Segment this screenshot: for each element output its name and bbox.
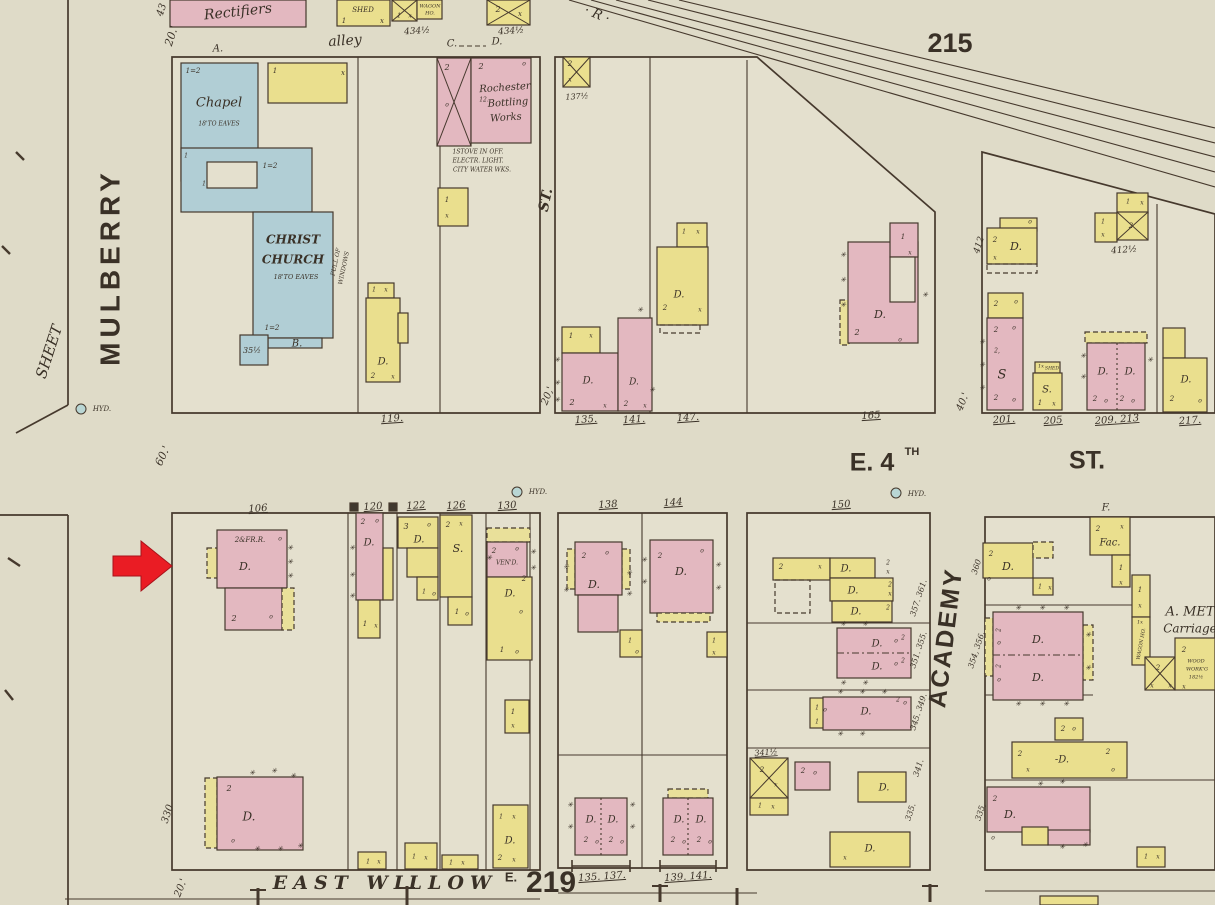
dwelling-label: D. — [1124, 367, 1136, 378]
map-label: 1 — [628, 638, 632, 645]
map-label: 18'TO EAVES — [274, 273, 319, 281]
pole-symbol — [389, 503, 397, 511]
building-label-christ-church: CHURCH — [262, 253, 325, 267]
map-label: 2 — [581, 552, 587, 560]
map-label: 18'TO EAVES — [198, 121, 239, 128]
map-label: 2 — [1119, 395, 1125, 403]
address-number: 205 — [1042, 415, 1063, 427]
railroad-label: · R · — [582, 3, 612, 27]
map-label: 35½ — [243, 346, 261, 355]
hydrant-label: HYD. — [907, 490, 926, 498]
map-label: o — [519, 609, 523, 616]
map-label: o — [997, 640, 1001, 647]
building — [1055, 718, 1083, 740]
map-label: o — [987, 576, 991, 583]
dwelling-label: D. — [504, 836, 516, 847]
map-label: 1=2 — [265, 324, 280, 332]
map-label: 1 — [445, 196, 449, 204]
map-label: o — [903, 700, 907, 707]
map-label: 2 — [1092, 395, 1098, 403]
map-label: x — [380, 17, 384, 25]
section-label: B. — [291, 339, 303, 350]
dwelling-label: D. — [674, 565, 687, 578]
note-label: CITY WATER WKS. — [453, 167, 511, 174]
address-number: 201. — [992, 414, 1016, 427]
building — [562, 327, 600, 353]
store-label: S. — [453, 542, 464, 555]
map-label: o — [1028, 219, 1032, 226]
porch — [1085, 332, 1147, 343]
bldg-138-dwelling — [578, 595, 618, 632]
dwelling-label: D. — [840, 564, 852, 575]
building — [1132, 575, 1150, 617]
map-label: o — [813, 770, 817, 777]
dwelling-label: D. — [587, 578, 600, 591]
building — [398, 313, 408, 343]
map-label: 2 — [993, 300, 999, 308]
map-label: 1 — [499, 814, 503, 821]
map-label: 1=2 — [263, 162, 278, 170]
map-label: 2 — [370, 372, 376, 380]
map-label: HO. — [424, 11, 435, 17]
map-label: o — [991, 835, 995, 842]
bldg-rowhouse — [575, 798, 627, 855]
dwelling-label: D. — [673, 815, 685, 826]
dwelling-label: D. — [628, 378, 639, 388]
hydrant-symbol — [76, 404, 86, 414]
address-number: 341½ — [754, 747, 778, 758]
dwelling-label: D. — [1031, 671, 1044, 684]
map-label: 2 — [885, 560, 890, 567]
address-number: 122 — [406, 500, 426, 512]
map-label: 2 — [778, 563, 784, 571]
store-label: S — [998, 368, 1007, 383]
building — [1095, 213, 1117, 242]
address-number: 434½ — [403, 25, 431, 38]
map-label: 2 — [992, 795, 998, 803]
business-label-carriage: Carriage — [1163, 622, 1215, 636]
address-number: 165 — [861, 410, 881, 422]
building — [505, 700, 529, 733]
map-label: o — [1072, 726, 1076, 733]
address-number: 120 — [363, 501, 383, 513]
map-label: SHED — [1045, 366, 1059, 372]
map-label: o — [278, 536, 282, 543]
map-label: x — [341, 69, 345, 77]
map-label: o — [1014, 299, 1018, 306]
map-label: 2 — [583, 836, 589, 844]
building — [750, 798, 788, 815]
address-number: 360 — [970, 558, 983, 575]
dwelling-label: -D. — [1055, 755, 1069, 766]
map-label: 1 — [366, 859, 370, 866]
pole-symbol — [350, 503, 358, 511]
map-label: 2 — [662, 304, 668, 312]
dwelling-label: D. — [1031, 633, 1044, 646]
map-label: 2 — [497, 854, 503, 862]
address-number: 412½ — [1110, 244, 1138, 257]
sheet-number-adjacent: 219 — [526, 866, 576, 899]
map-label: 2&FR.R. — [234, 536, 266, 544]
map-label: o — [269, 614, 273, 621]
map-label: x — [518, 10, 522, 18]
map-label: o — [1198, 398, 1202, 405]
sheet-margin-label: SHEET — [32, 322, 67, 381]
address-number: 147. — [677, 412, 700, 425]
section-label: D. — [491, 37, 503, 48]
map-label: o — [898, 337, 902, 344]
map-label: 1x — [1038, 364, 1044, 370]
map-label: o — [427, 522, 431, 529]
hydrant-symbol — [512, 487, 522, 497]
map-label: 2 — [1128, 222, 1134, 230]
map-label: 1x — [1137, 620, 1143, 626]
address-number: 209. 213 — [1093, 413, 1139, 427]
dwelling-label: D. — [363, 538, 375, 549]
section-label: F. — [1101, 503, 1111, 514]
map-label: 2 — [993, 326, 999, 334]
bldg-rowhouse — [663, 798, 713, 855]
bldg-dwelling — [987, 787, 1090, 832]
red-arrow-marker — [113, 541, 172, 591]
map-label: o — [1012, 397, 1016, 404]
map-label: 2 — [988, 550, 994, 558]
map-label: o — [1111, 767, 1115, 774]
map-label: 1 — [901, 233, 905, 241]
map-label: 2 — [853, 328, 859, 337]
courtyard — [890, 257, 915, 302]
map-label: 1 — [363, 620, 367, 628]
dwelling-label: D. — [241, 810, 255, 824]
dwelling-label: D. — [1003, 808, 1016, 821]
bldg-shed — [442, 855, 478, 869]
dimension-label: 43 — [154, 2, 169, 18]
map-label: 1 — [1138, 586, 1142, 594]
map-label: 2 — [885, 605, 890, 612]
note-label: 1STOVE IN OFF. — [452, 149, 503, 156]
building — [407, 548, 438, 577]
map-label: o — [522, 61, 526, 68]
porch — [205, 778, 217, 848]
street-name-st: ST. — [536, 187, 557, 213]
business-label-woodworking: WOOD — [1187, 659, 1204, 665]
street-name-east-willow: EAST WILLOW — [272, 872, 498, 894]
bldg-106-dwelling — [225, 588, 282, 630]
map-label: o — [465, 611, 469, 618]
address-number: 354, 356. — [966, 630, 986, 669]
dwelling-label: D. — [847, 586, 859, 597]
map-label: 1 — [455, 608, 459, 616]
address-number: 137½ — [565, 91, 589, 102]
map-label: WAGON — [420, 4, 442, 10]
address-number: 150 — [831, 499, 851, 511]
dwelling-label: D. — [1097, 367, 1109, 378]
map-label: 2, — [993, 348, 1000, 355]
address-number: 141. — [623, 414, 646, 427]
map-label: 2 — [230, 614, 236, 623]
porch — [985, 618, 993, 676]
dwelling-label: D. — [878, 783, 890, 794]
map-label: 2 — [900, 658, 905, 665]
map-label: 2 — [360, 518, 366, 526]
street-name-e4th: E. 4 — [850, 449, 895, 477]
building — [1022, 827, 1048, 845]
map-label: 2 — [1017, 750, 1023, 758]
map-label: 1 — [682, 229, 686, 236]
map-label: 3 — [403, 522, 408, 531]
dwelling-label: D. — [238, 560, 251, 573]
map-label: 1 — [1126, 199, 1130, 206]
dwelling-label: D. — [607, 815, 619, 826]
map-label: 2 — [887, 582, 892, 589]
map-label: 1 — [815, 705, 819, 712]
address-number: 106 — [248, 503, 268, 515]
map-label: 2 — [800, 767, 806, 775]
map-label: 1 — [342, 17, 346, 25]
sanborn-map: 4320.'RectifiersSHED1x1xWAGONHO.434½2x43… — [0, 0, 1215, 905]
porch — [207, 548, 218, 578]
map-label: 1=2 — [186, 67, 201, 75]
address-number: 144 — [663, 497, 683, 509]
map-label: o — [894, 638, 898, 645]
map-label: 1 — [1144, 854, 1148, 861]
dwelling-label: D. — [871, 639, 883, 650]
building-label-christ-church: CHRIST — [266, 233, 321, 247]
building — [1163, 328, 1185, 358]
map-label: 1 — [184, 153, 188, 160]
map-label: 1 — [1038, 399, 1042, 407]
map-label: o — [620, 839, 624, 846]
bldg-store — [987, 318, 1023, 410]
dwelling-label: D. — [585, 815, 597, 826]
map-label: 1 — [1038, 584, 1042, 591]
map-label: 2 — [895, 697, 900, 704]
dwelling-label: D. — [504, 589, 516, 600]
building — [1040, 896, 1098, 905]
margin-mark — [8, 558, 20, 566]
section-label: C. — [447, 39, 457, 50]
map-label: 2 — [900, 635, 905, 642]
map-label: 2 — [1060, 725, 1066, 733]
porch — [1033, 542, 1053, 558]
street-name-e4th: TH — [905, 446, 920, 458]
church-courtyard — [207, 162, 257, 188]
section-label: A. — [212, 44, 223, 55]
map-label: 1 — [202, 181, 206, 188]
map-label: 2 — [623, 400, 629, 408]
bldg-shed — [707, 632, 727, 657]
map-label: 2 — [657, 552, 663, 560]
map-label: 2 — [608, 836, 614, 844]
building-label: SHED — [352, 6, 374, 14]
dwelling-label: D. — [1180, 375, 1192, 386]
factory-label: Fac. — [1098, 538, 1120, 549]
map-label: 2 — [494, 5, 500, 14]
map-label: 2 — [1095, 525, 1101, 533]
map-label: 1 — [1101, 219, 1105, 226]
street-name-east-willow: E. — [505, 869, 517, 884]
street-name-mulberry: MULBERRY — [94, 168, 125, 366]
map-label: 1 — [449, 860, 453, 867]
map-label: 2 — [996, 628, 1003, 633]
bldg-dwelling — [830, 578, 893, 601]
dwelling-label: D. — [871, 662, 883, 673]
store-label: S. — [1042, 385, 1052, 396]
map-label: 2 — [1181, 646, 1187, 654]
dimension-label: 60.' — [152, 444, 172, 468]
map-label: o — [997, 677, 1001, 684]
map-label: 1 — [500, 646, 504, 654]
map-label: 1 — [815, 719, 819, 726]
address-number: 130 — [497, 500, 517, 512]
building — [438, 188, 468, 226]
map-label: 1 — [1119, 564, 1123, 572]
map-label: 1 — [397, 13, 401, 20]
map-label: 2 — [1105, 748, 1111, 756]
bldg-dwelling — [618, 318, 652, 411]
dwelling-label: D. — [1009, 240, 1022, 253]
map-label: o — [708, 839, 712, 846]
sheet-edge — [16, 405, 68, 433]
map-label: o — [1131, 398, 1135, 405]
bldg-factory — [1090, 517, 1130, 555]
dwelling-label: D. — [850, 607, 862, 618]
margin-mark — [5, 690, 13, 700]
map-label: 2 — [696, 836, 702, 844]
map-label: 2 — [443, 63, 449, 72]
map-label: 2 — [1155, 664, 1161, 672]
dwelling-label: D. — [864, 844, 876, 855]
business-label-bottling: Works — [490, 111, 522, 124]
dwelling-label: D. — [1001, 560, 1014, 573]
sheet-number: 215 — [927, 28, 972, 58]
map-label: 1 — [569, 332, 573, 340]
map-label: 182½ — [1189, 674, 1204, 681]
bldg-dwelling — [356, 513, 383, 600]
map-label: o — [894, 661, 898, 668]
address-number: 135. — [575, 414, 598, 427]
note-label: ELECTR. LIGHT. — [451, 158, 503, 165]
map-label: 2 — [670, 836, 676, 844]
bldg-double-dwelling — [993, 612, 1083, 700]
address-number: 217. — [1178, 415, 1202, 428]
map-label: o — [445, 102, 449, 109]
dwelling-label: D. — [695, 815, 707, 826]
map-label: 2 — [993, 394, 999, 402]
map-label: 2 — [759, 766, 765, 774]
map-label: 1 — [372, 287, 376, 294]
bldg-shed — [405, 843, 437, 869]
address-number: 139. 141. — [664, 870, 712, 884]
hydrant-symbol — [891, 488, 901, 498]
map-label: o — [515, 546, 519, 553]
address-number: 135. 137. — [578, 870, 626, 884]
building-label-chapel: Chapel — [196, 96, 242, 111]
dimension-label: 20.' — [162, 24, 181, 48]
map-label: 1 — [422, 589, 426, 596]
map-label: o — [1012, 325, 1016, 332]
porch — [487, 528, 530, 542]
bldg-shed — [358, 852, 386, 869]
map-label: o — [635, 649, 639, 656]
margin-mark — [16, 152, 24, 160]
map-label: o — [700, 548, 704, 555]
map-label: o — [432, 591, 436, 598]
map-label: o — [1104, 398, 1108, 405]
map-label: 2 — [992, 236, 998, 244]
hydrant-label: HYD. — [92, 405, 111, 413]
map-label: o — [595, 839, 599, 846]
map-label: 1 — [758, 803, 762, 810]
street-name-alley: alley — [328, 32, 364, 50]
map-label: 2 — [477, 62, 483, 71]
address-number: 126 — [446, 500, 466, 512]
map-label: o — [682, 839, 686, 846]
map-label: o — [515, 649, 519, 656]
dwelling-label: D. — [582, 376, 594, 387]
address-number: 138 — [598, 499, 618, 511]
map-label: 1 — [273, 67, 277, 75]
business-label-woodworking: WORK'G — [1186, 667, 1208, 673]
map-label: o — [231, 838, 235, 845]
map-label: o — [823, 707, 827, 714]
map-label: 2 — [567, 60, 573, 68]
address-number: 119. — [381, 413, 404, 426]
porch — [282, 588, 294, 630]
bldg-dwelling — [832, 601, 892, 622]
business-label-carriage: A. MET — [1164, 605, 1215, 620]
bldg-dwelling — [830, 558, 875, 578]
map-label: 2 — [568, 398, 574, 407]
dwelling-label: D. — [860, 707, 872, 718]
map-label: 1 — [511, 708, 515, 716]
map-label: VEN'D. — [496, 560, 518, 567]
map-label: 2 — [1169, 395, 1175, 403]
map-label: 1 — [412, 854, 416, 861]
map-label: 1 — [712, 638, 716, 645]
bldg-dwelling — [366, 298, 400, 382]
map-label: 2 — [225, 784, 231, 793]
map-label: o — [605, 550, 609, 557]
bldg-shed — [1137, 847, 1165, 867]
dimension-label: 20.' — [172, 877, 190, 899]
map-canvas: 4320.'RectifiersSHED1x1xWAGONHO.434½2x43… — [0, 0, 1215, 905]
dimension-label: 40.' — [954, 391, 972, 413]
map-label: 2 — [996, 664, 1003, 669]
map-label: 2 — [521, 575, 527, 583]
dwelling-label: D. — [413, 535, 425, 546]
dwelling-label: D. — [873, 308, 886, 321]
dwelling-label: D. — [673, 290, 685, 301]
map-label: o — [375, 518, 379, 525]
hydrant-label: HYD. — [528, 488, 547, 496]
bldg-shed — [268, 63, 347, 103]
porch — [657, 613, 710, 622]
building — [383, 548, 393, 600]
porch — [668, 789, 708, 798]
margin-mark — [2, 246, 10, 254]
dwelling-label: D. — [377, 357, 389, 368]
building — [358, 600, 380, 638]
street-name-e4th: ST. — [1069, 447, 1105, 475]
map-label: 2 — [445, 521, 451, 529]
